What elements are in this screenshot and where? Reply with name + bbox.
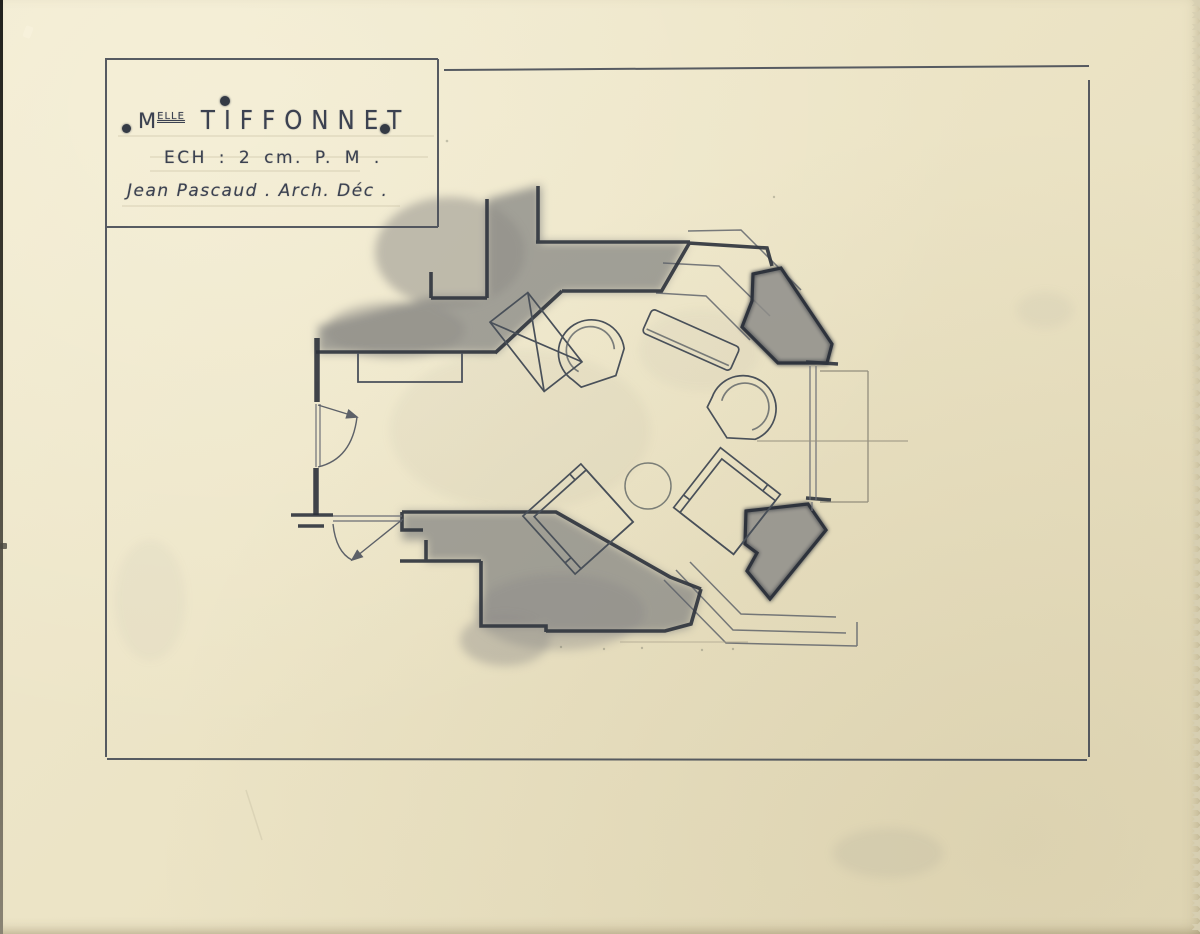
bay-projection (820, 371, 868, 502)
scanned-floor-plan-drawing: MELLETIFFONNET ECH : 2 cm. P. M . Jean P… (0, 0, 1200, 934)
bay-window-glazing (810, 366, 816, 511)
door-leaf-upper (316, 404, 320, 467)
corner-pier-shading (742, 268, 832, 599)
scale-line: ECH : 2 cm. P. M . (164, 148, 382, 168)
door-arrow-upper (346, 410, 357, 418)
pencil-dot-top (220, 96, 230, 106)
client-name-line: MELLETIFFONNET (138, 108, 410, 134)
paper-crease (246, 790, 262, 840)
honorific-superscript: ELLE (157, 111, 185, 123)
pencil-dot-left (122, 124, 131, 133)
deckled-paper-edge (1191, 0, 1200, 934)
door-swing-lower (333, 519, 403, 560)
door-opening-lower (333, 516, 402, 521)
floor-plan-linework (0, 0, 1200, 934)
door-swing-upper (318, 405, 357, 467)
title-box-frame (106, 59, 438, 227)
author-line: Jean Pascaud . Arch. Déc . (127, 181, 388, 201)
door-arrow-lower (352, 551, 362, 560)
honorific: M (138, 109, 157, 133)
side-table (625, 463, 671, 509)
wall-shading (115, 185, 1073, 878)
frame-bottom (107, 759, 1087, 760)
client-name: TIFFONNET (201, 106, 410, 135)
frame-top (444, 66, 1089, 70)
